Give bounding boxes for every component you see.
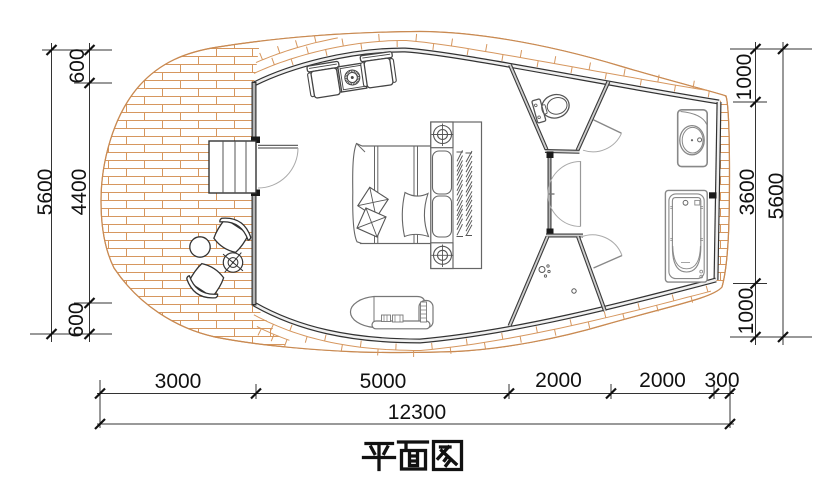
svg-text:1000: 1000 bbox=[733, 54, 756, 101]
svg-text:1000: 1000 bbox=[735, 288, 758, 335]
svg-text:600: 600 bbox=[66, 48, 89, 83]
svg-text:3000: 3000 bbox=[155, 370, 202, 393]
svg-text:4400: 4400 bbox=[68, 169, 91, 216]
svg-text:5600: 5600 bbox=[34, 169, 57, 216]
svg-text:5600: 5600 bbox=[765, 173, 788, 220]
svg-text:2000: 2000 bbox=[639, 369, 686, 392]
svg-text:300: 300 bbox=[704, 369, 739, 392]
svg-text:600: 600 bbox=[65, 302, 88, 337]
svg-text:5000: 5000 bbox=[360, 370, 407, 393]
svg-text:3600: 3600 bbox=[736, 169, 759, 216]
svg-text:2000: 2000 bbox=[535, 369, 582, 392]
svg-text:12300: 12300 bbox=[388, 401, 446, 424]
